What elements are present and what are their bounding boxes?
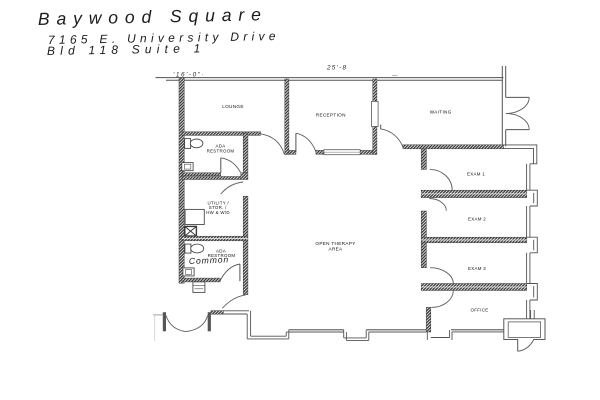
svg-text:HW & W/D: HW & W/D (206, 210, 230, 215)
svg-text:Common: Common (189, 254, 230, 266)
svg-text:EXAM 1: EXAM 1 (467, 171, 485, 176)
svg-text:OPEN THERAPY: OPEN THERAPY (315, 241, 356, 246)
svg-text:EXAM 3: EXAM 3 (468, 266, 486, 271)
svg-text:OFFICE: OFFICE (471, 307, 489, 312)
svg-text:EXAM 2: EXAM 2 (468, 216, 486, 221)
svg-text:AREA: AREA (329, 246, 344, 251)
svg-text:WAITING: WAITING (430, 109, 452, 114)
svg-text:25’-8: 25’-8 (326, 65, 347, 72)
svg-text:Bld 118 Suite 1: Bld 118 Suite 1 (47, 41, 206, 58)
svg-text:RECEPTION: RECEPTION (316, 112, 346, 117)
svg-text:RESTROOM: RESTROOM (207, 148, 235, 153)
svg-text:LOUNGE: LOUNGE (222, 104, 244, 109)
